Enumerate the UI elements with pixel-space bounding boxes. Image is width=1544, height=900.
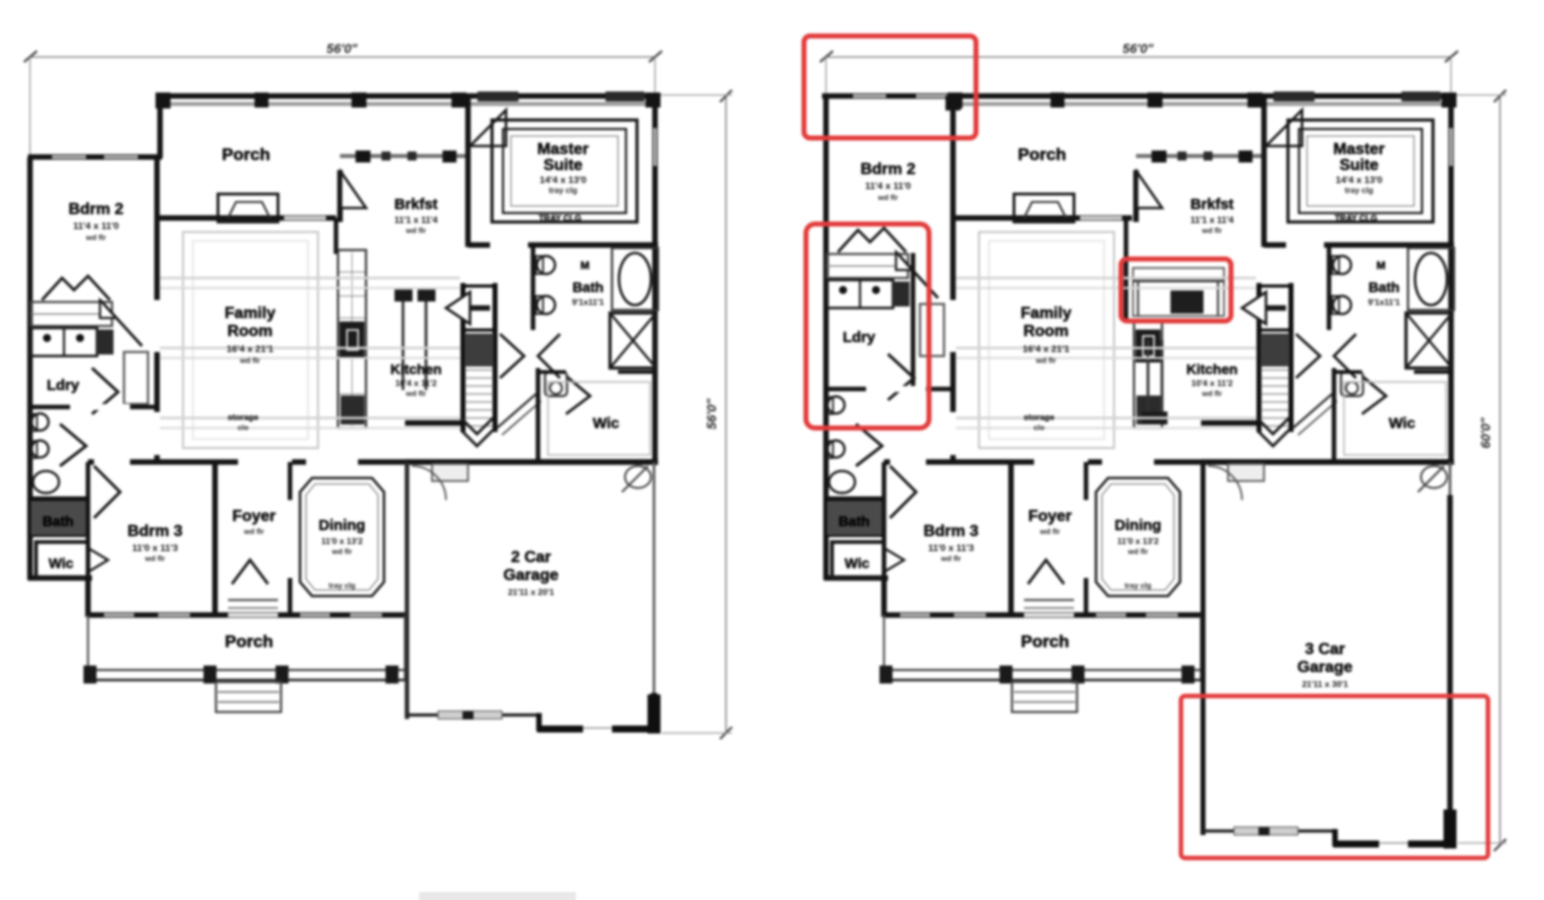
svg-text:Porch: Porch — [1018, 145, 1066, 164]
svg-text:11'4 x 11'0: 11'4 x 11'0 — [865, 181, 911, 192]
svg-text:wd flr: wd flr — [405, 226, 426, 235]
svg-text:Kitchen: Kitchen — [1186, 361, 1237, 377]
svg-text:clo: clo — [238, 423, 249, 432]
svg-text:Bath: Bath — [572, 279, 603, 295]
svg-text:56'0": 56'0" — [704, 398, 719, 430]
svg-text:wd flr: wd flr — [1039, 527, 1060, 536]
svg-text:Family: Family — [225, 305, 276, 322]
svg-text:M: M — [580, 260, 589, 272]
svg-text:Wic: Wic — [845, 555, 870, 571]
svg-text:wd flr: wd flr — [144, 554, 165, 563]
svg-text:Dining: Dining — [1115, 517, 1162, 534]
svg-text:Suite: Suite — [543, 157, 582, 174]
svg-text:Bath: Bath — [1368, 279, 1399, 295]
svg-text:11'0 x 13'2: 11'0 x 13'2 — [1117, 536, 1159, 546]
svg-text:tray clg: tray clg — [549, 186, 578, 195]
svg-text:Wic: Wic — [1389, 415, 1416, 432]
svg-text:Dining: Dining — [319, 517, 366, 534]
svg-text:14'4 x 13'0: 14'4 x 13'0 — [540, 175, 587, 186]
svg-text:11'0 x 11'3: 11'0 x 11'3 — [928, 543, 974, 554]
svg-text:2 Car: 2 Car — [511, 549, 551, 566]
svg-text:wd flr: wd flr — [940, 554, 961, 563]
svg-text:21'11 x 20'1: 21'11 x 20'1 — [508, 587, 554, 597]
svg-text:Wic: Wic — [49, 555, 74, 571]
svg-text:3 Car: 3 Car — [1305, 641, 1345, 658]
svg-text:TRAY CLG: TRAY CLG — [1335, 213, 1378, 223]
svg-text:11'1 x 11'4: 11'1 x 11'4 — [1190, 215, 1233, 225]
svg-text:wd flr: wd flr — [243, 527, 264, 536]
svg-text:wd flr: wd flr — [239, 356, 260, 365]
svg-text:Bdrm 2: Bdrm 2 — [68, 201, 123, 218]
svg-text:wd flr: wd flr — [1201, 389, 1222, 398]
svg-text:16'4 x 21'1: 16'4 x 21'1 — [227, 344, 274, 355]
svg-text:Family: Family — [1021, 305, 1072, 322]
svg-text:Brkfst: Brkfst — [394, 196, 437, 213]
svg-text:Foyer: Foyer — [232, 508, 276, 525]
svg-text:Room: Room — [227, 323, 272, 340]
svg-text:Wic: Wic — [593, 415, 620, 432]
svg-text:Porch: Porch — [1021, 632, 1069, 651]
svg-text:11'1 x 11'4: 11'1 x 11'4 — [394, 215, 437, 225]
svg-text:Porch: Porch — [225, 632, 273, 651]
svg-text:storage: storage — [228, 412, 259, 422]
svg-text:Garage: Garage — [1297, 659, 1352, 676]
svg-text:60'0": 60'0" — [1478, 417, 1493, 449]
svg-text:Bdrm 2: Bdrm 2 — [860, 161, 915, 178]
svg-text:Master: Master — [1333, 141, 1385, 158]
svg-text:Bath: Bath — [42, 513, 73, 529]
svg-text:Bdrm 3: Bdrm 3 — [923, 523, 978, 540]
svg-text:tray clg: tray clg — [1125, 581, 1152, 590]
svg-text:10'4 x 11'2: 10'4 x 11'2 — [395, 378, 437, 388]
svg-text:tray clg: tray clg — [329, 581, 356, 590]
svg-text:56'0": 56'0" — [1123, 41, 1155, 56]
svg-text:Master: Master — [537, 141, 589, 158]
svg-text:56'0": 56'0" — [327, 41, 359, 56]
svg-text:wd flr: wd flr — [877, 193, 898, 202]
svg-text:11'4 x 11'0: 11'4 x 11'0 — [73, 221, 119, 232]
svg-text:Bath: Bath — [838, 513, 869, 529]
svg-text:wd flr: wd flr — [85, 233, 106, 242]
svg-text:21'11 x 30'1: 21'11 x 30'1 — [1302, 679, 1348, 689]
svg-text:9'1x11'1: 9'1x11'1 — [572, 297, 604, 307]
svg-text:16'4 x 21'1: 16'4 x 21'1 — [1023, 344, 1070, 355]
svg-text:Suite: Suite — [1339, 157, 1378, 174]
svg-text:storage: storage — [1024, 412, 1055, 422]
svg-text:Ldry: Ldry — [843, 329, 876, 346]
svg-text:14'4 x 13'0: 14'4 x 13'0 — [1336, 175, 1383, 186]
svg-text:Room: Room — [1023, 323, 1068, 340]
svg-text:Bdrm 3: Bdrm 3 — [127, 523, 182, 540]
svg-text:wd flr: wd flr — [1201, 226, 1222, 235]
svg-text:tray clg: tray clg — [1345, 186, 1374, 195]
svg-text:M: M — [1376, 260, 1385, 272]
svg-text:clo: clo — [1034, 423, 1045, 432]
svg-text:Ldry: Ldry — [47, 377, 80, 394]
svg-text:wd flr: wd flr — [1127, 547, 1148, 556]
svg-text:10'4 x 11'2: 10'4 x 11'2 — [1191, 378, 1233, 388]
svg-text:wd flr: wd flr — [331, 547, 352, 556]
svg-text:Kitchen: Kitchen — [390, 361, 441, 377]
svg-text:TRAY CLG: TRAY CLG — [539, 213, 582, 223]
svg-text:wd flr: wd flr — [405, 389, 426, 398]
svg-text:Porch: Porch — [222, 145, 270, 164]
svg-text:11'0 x 13'2: 11'0 x 13'2 — [321, 536, 363, 546]
svg-text:Garage: Garage — [503, 567, 558, 584]
svg-text:Brkfst: Brkfst — [1190, 196, 1233, 213]
svg-text:Foyer: Foyer — [1028, 508, 1072, 525]
svg-text:9'1x11'1: 9'1x11'1 — [1368, 297, 1400, 307]
svg-text:11'0 x 11'3: 11'0 x 11'3 — [132, 543, 178, 554]
svg-text:wd flr: wd flr — [1035, 356, 1056, 365]
